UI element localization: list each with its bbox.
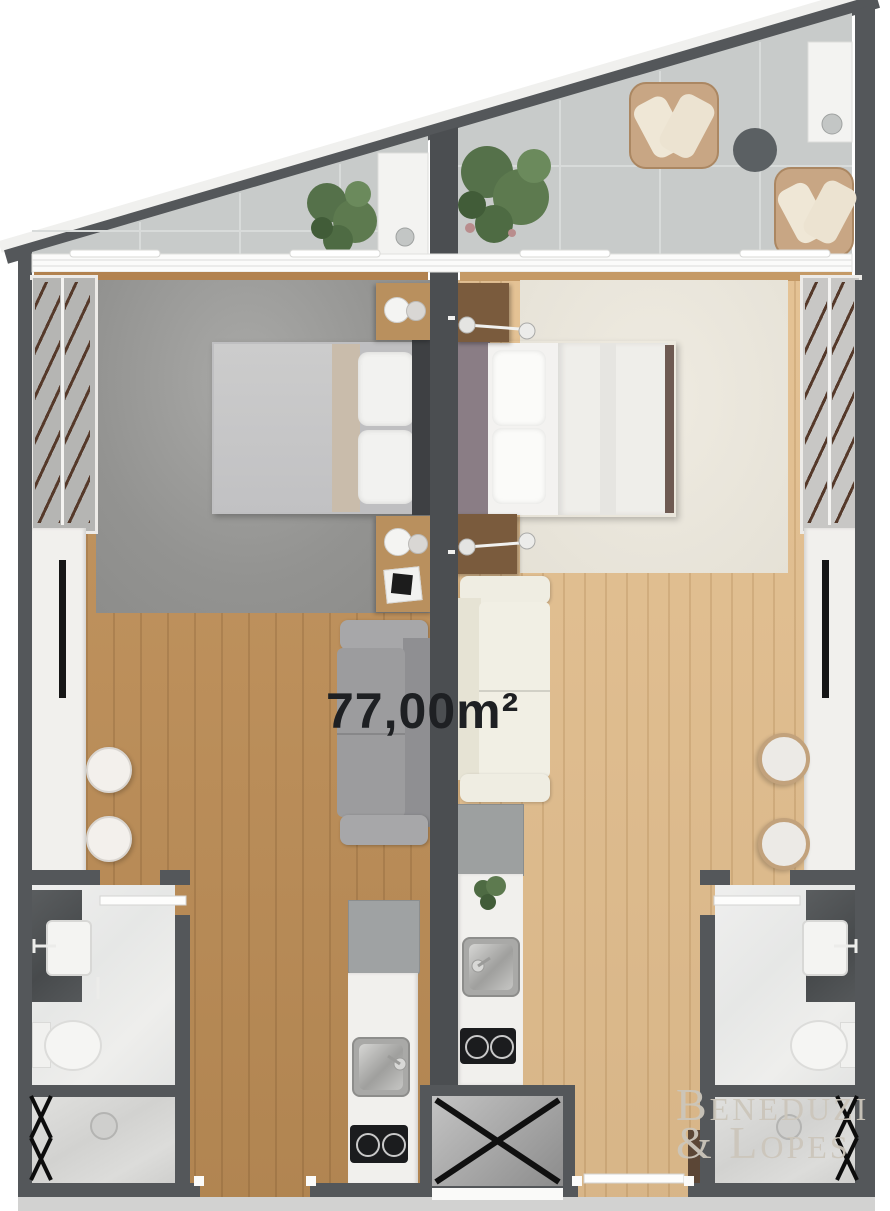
left-stool	[86, 816, 132, 862]
left-bed-blanket	[332, 344, 360, 512]
sofa-armrest	[340, 815, 428, 845]
kitchen-plant	[472, 876, 508, 916]
hanger-rail-icon	[832, 282, 854, 523]
right-stool	[758, 818, 810, 870]
bottom-wall	[18, 1183, 200, 1197]
right-wall-top	[855, 4, 875, 281]
right-cooktop	[460, 1028, 516, 1064]
left-cooktop	[350, 1125, 408, 1163]
left-bed-headboard	[412, 340, 432, 515]
bottom-wall	[688, 1183, 855, 1197]
right-fridge	[456, 804, 524, 876]
left-fridge	[348, 900, 420, 975]
elevator-opening	[432, 1188, 563, 1200]
left-exterior-wall	[18, 280, 32, 1197]
left-bathroom-wall	[160, 870, 190, 885]
wardrobe-divider	[61, 278, 64, 525]
right-bathroom-wall	[790, 870, 855, 885]
brand-watermark: Beneduzi & Lopes	[676, 1086, 869, 1161]
left-bed-duvet	[214, 344, 334, 512]
left-bathroom-wall	[175, 915, 190, 1183]
left-nightstand-top	[376, 283, 432, 340]
right-vanity-sink	[802, 920, 848, 976]
wicker-armchair-1	[630, 83, 718, 168]
right-wardrobe	[800, 275, 862, 534]
balcony-side-table	[733, 128, 777, 172]
magazine	[383, 566, 422, 604]
right-kitchen-sink	[462, 937, 520, 997]
cup-icon	[408, 534, 428, 554]
brand-line2: & Lopes	[676, 1124, 869, 1162]
hanger-rail-icon	[35, 282, 60, 523]
right-tv-counter	[804, 528, 855, 880]
left-shower-floor	[32, 1097, 175, 1183]
left-shower-partition	[32, 1085, 175, 1097]
right-toilet	[790, 1020, 848, 1071]
left-balcony-sink	[396, 228, 414, 246]
wicker-armchair-2	[774, 168, 860, 256]
right-bathroom-wall	[700, 870, 730, 885]
left-bed	[212, 342, 432, 514]
left-vanity-sink	[46, 920, 92, 976]
burner-icon	[465, 1035, 489, 1059]
left-side-desk	[376, 516, 433, 612]
left-bed-pillow	[358, 352, 414, 426]
left-stool	[86, 747, 132, 793]
floor-plan: 77,00m² Beneduzi & Lopes	[0, 0, 890, 1211]
burner-icon	[356, 1133, 380, 1157]
left-shower-drain	[90, 1112, 118, 1140]
hanger-rail-icon	[805, 282, 827, 523]
left-toilet	[44, 1020, 102, 1071]
burner-icon	[490, 1035, 514, 1059]
right-nightstand-bottom	[455, 514, 517, 574]
right-bed-headboard	[458, 341, 490, 517]
hanger-rail-icon	[65, 282, 90, 523]
left-bed-pillow	[358, 430, 414, 504]
sofa-armrest	[460, 774, 550, 802]
left-kitchen-sink	[352, 1037, 410, 1097]
elevator-shaft	[432, 1096, 563, 1186]
burner-icon	[382, 1133, 406, 1157]
cup-icon	[406, 301, 426, 321]
right-nightstand-top	[455, 283, 509, 342]
right-exterior-wall	[855, 280, 875, 1197]
right-tv	[822, 560, 829, 698]
wardrobe-divider	[828, 278, 831, 525]
right-bed	[458, 341, 676, 517]
right-stool	[758, 733, 810, 785]
left-wardrobe	[30, 275, 98, 534]
right-bed-frame-edge	[665, 345, 674, 513]
right-bed-pillow	[492, 350, 546, 426]
right-bed-pillow	[492, 428, 546, 504]
area-label: 77,00m²	[326, 682, 519, 740]
balcony-roof-section	[0, 0, 890, 281]
right-balcony-sink	[822, 114, 842, 134]
duvet-fold	[600, 343, 616, 515]
left-tv	[59, 560, 66, 698]
